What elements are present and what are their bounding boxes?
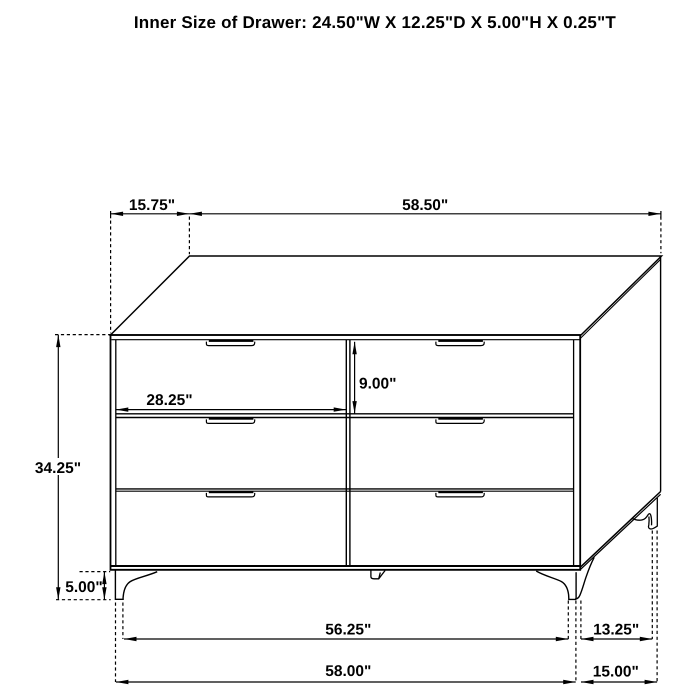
svg-text:56.25": 56.25"	[325, 622, 371, 639]
svg-text:5.00": 5.00"	[65, 579, 103, 596]
svg-text:34.25": 34.25"	[35, 460, 81, 477]
svg-text:28.25": 28.25"	[146, 392, 192, 409]
svg-text:9.00": 9.00"	[359, 376, 397, 393]
svg-text:58.00": 58.00"	[325, 663, 371, 680]
svg-text:58.50": 58.50"	[402, 197, 448, 214]
svg-text:15.00": 15.00"	[593, 664, 639, 681]
svg-text:Inner Size of Drawer: 24.50"W: Inner Size of Drawer: 24.50"W X 12.25"D …	[134, 13, 616, 32]
svg-text:13.25": 13.25"	[593, 622, 639, 639]
svg-text:15.75": 15.75"	[129, 197, 175, 214]
